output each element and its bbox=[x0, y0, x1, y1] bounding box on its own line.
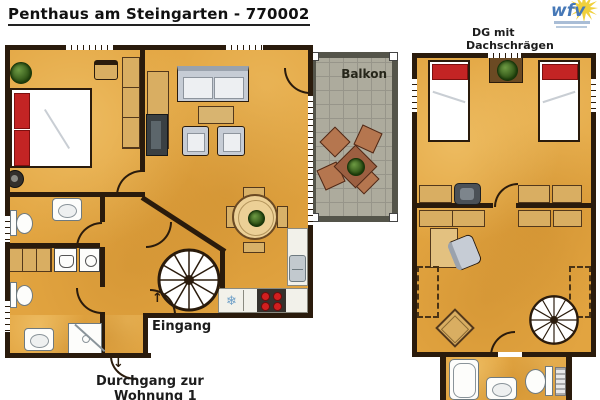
passage-arrow-icon: ↓ bbox=[113, 356, 124, 371]
wall bbox=[143, 313, 148, 358]
logo-tagline bbox=[556, 26, 587, 28]
window bbox=[412, 78, 417, 112]
entrance-arrow-icon: ↑ bbox=[152, 291, 163, 306]
wall bbox=[516, 203, 591, 208]
toilet-bowl bbox=[16, 213, 33, 234]
wall bbox=[412, 352, 498, 357]
bed-fold bbox=[44, 109, 70, 149]
bed-fold bbox=[433, 91, 466, 103]
window bbox=[65, 45, 113, 50]
plant bbox=[10, 62, 32, 84]
entrance-label: Eingang bbox=[152, 319, 211, 334]
bed-fold bbox=[543, 91, 576, 103]
sideboard bbox=[518, 210, 551, 227]
bathroom-sink bbox=[24, 328, 54, 351]
knee-wall-zone bbox=[417, 266, 439, 318]
plant bbox=[497, 60, 518, 81]
coffee-table bbox=[198, 106, 234, 124]
bathroom-sink bbox=[52, 198, 82, 221]
balcony-post bbox=[389, 213, 398, 222]
bathroom-sink bbox=[486, 377, 517, 400]
passage-label-line2: Wohnung 1 bbox=[114, 389, 197, 400]
toilet-bowl bbox=[525, 369, 546, 394]
tv bbox=[146, 114, 168, 156]
logo-text: wfv bbox=[551, 1, 585, 21]
sideboard bbox=[553, 210, 582, 227]
toilet-tank bbox=[545, 366, 553, 396]
single-bed bbox=[428, 60, 470, 142]
window bbox=[5, 300, 10, 332]
sideboard bbox=[419, 185, 452, 203]
double-bed bbox=[10, 88, 92, 168]
sideboard bbox=[419, 210, 485, 227]
bed-pillow bbox=[542, 64, 578, 80]
floorplan-page: Penthaus am Steingarten - 770002 wfv Bal… bbox=[0, 0, 600, 400]
freezer: ❄ bbox=[220, 290, 244, 311]
page-title: Penthaus am Steingarten - 770002 bbox=[8, 5, 310, 26]
dryer bbox=[79, 248, 100, 272]
washing-machine bbox=[54, 248, 77, 272]
balcony-post bbox=[389, 52, 398, 61]
logo-tagline bbox=[554, 21, 590, 24]
wall bbox=[140, 48, 145, 172]
dining-chair bbox=[243, 242, 265, 253]
wall bbox=[100, 197, 105, 222]
bed-pillow bbox=[14, 130, 30, 166]
bed-pillow bbox=[14, 93, 30, 129]
balcony-label: Balkon bbox=[341, 67, 387, 81]
attic-label-line1: DG mit bbox=[472, 26, 514, 39]
plant bbox=[248, 210, 265, 227]
wall bbox=[100, 247, 105, 287]
attic-label-line2: Dachschrägen bbox=[466, 39, 554, 52]
window bbox=[591, 78, 596, 112]
utility-shelf bbox=[8, 248, 52, 272]
window bbox=[5, 215, 10, 242]
bathtub bbox=[449, 359, 479, 400]
sofa bbox=[177, 66, 249, 102]
single-bed bbox=[538, 60, 580, 142]
passage-label-line1: Durchgang zur bbox=[96, 374, 204, 389]
toilet-bowl bbox=[16, 285, 33, 306]
armchair bbox=[217, 126, 245, 156]
dining-chair bbox=[277, 206, 288, 228]
spiral-staircase bbox=[528, 294, 580, 346]
kitchen-sink bbox=[289, 255, 306, 282]
wall bbox=[566, 357, 572, 400]
radiator bbox=[555, 367, 566, 396]
wall bbox=[5, 45, 313, 50]
wfv-logo: wfv bbox=[548, 0, 600, 30]
shower bbox=[68, 323, 102, 354]
bed-pillow bbox=[432, 64, 468, 80]
plant bbox=[347, 158, 365, 176]
wall bbox=[440, 357, 446, 400]
armchair-dark bbox=[454, 183, 481, 205]
stove bbox=[257, 289, 286, 312]
window bbox=[487, 53, 521, 58]
window bbox=[308, 95, 313, 225]
bedroom-chair bbox=[94, 60, 118, 80]
armchair bbox=[182, 126, 209, 156]
snowflake-icon: ❄ bbox=[226, 294, 237, 309]
sideboard bbox=[552, 185, 582, 203]
wardrobe bbox=[122, 57, 140, 149]
sideboard bbox=[518, 185, 550, 203]
wall bbox=[522, 352, 596, 357]
window bbox=[225, 45, 263, 50]
